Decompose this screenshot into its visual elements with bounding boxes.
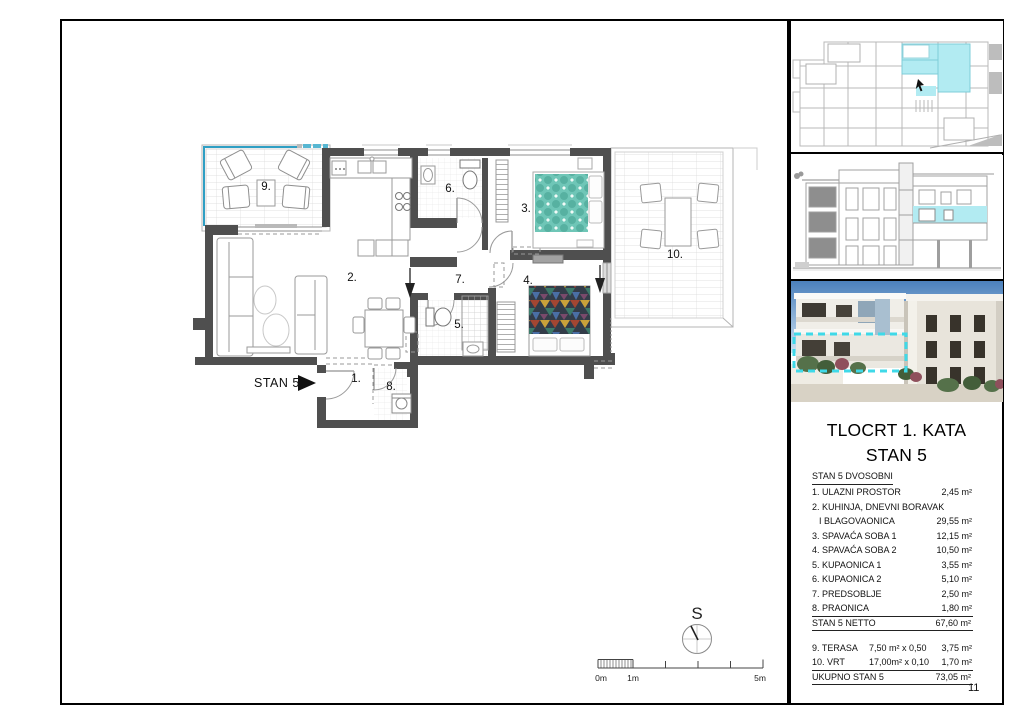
legend-subtotal-row: STAN 5 NETTO 67,60 m² [812,616,973,631]
building-render-photo [791,281,1003,402]
legend-row-value: 2,50 m² [941,587,972,602]
legend-row: 8. PRAONICA 1,80 m² [789,601,1004,616]
legend-row: 2. KUHINJA, DNEVNI BORAVAK [789,500,1004,515]
closet [496,160,508,222]
total-label: UKUPNO STAN 5 [812,671,884,684]
legend-row-value: 3,75 m² [941,641,972,656]
panel-title: TLOCRT 1. KATA STAN 5 [790,418,1003,468]
legend-row-calc: 7,50 m² x 0,50 [869,641,927,656]
tv-bench [247,347,290,353]
legend-row-value: 1,70 m² [941,655,972,670]
washbasin [424,169,433,182]
scale-label: 1m [627,673,639,683]
legend-row-label: 7. PREDSOBLJE [812,587,882,602]
sofa-large [217,238,253,356]
legend-row-label: 1. ULAZNI PROSTOR [812,485,901,500]
toilet-tank [460,160,480,168]
scale-label: 0m [595,673,607,683]
subtotal-label: STAN 5 NETTO [812,617,876,630]
toilet-bowl [435,308,451,326]
legend-row-value: 29,55 m² [936,514,972,529]
bed-1-blanket [535,174,588,232]
scale-labels: 0m1m5m [595,673,766,683]
section-thumbnail [791,155,1003,279]
total-value: 73,05 m² [935,671,971,684]
legend-row: 5. KUPAONICA 1 3,55 m² [789,558,1004,573]
legend-rows: 1. ULAZNI PROSTOR 2,45 m² 2. KUHINJA, DN… [789,485,1004,616]
terrace-10-garden [611,148,757,327]
room-label-1: 1. [351,373,361,385]
legend-row: 9. TERASA 7,50 m² x 0,50 3,75 m² [789,641,1004,656]
legend-row-value: 12,15 m² [936,529,972,544]
room-label-5: 5. [454,319,464,331]
panel-divider [789,152,1004,154]
sink-basin [373,161,386,173]
legend-row-value: 5,10 m² [941,572,972,587]
bedroom-2 [497,286,590,356]
drawing-sheet: { "page": { "number": "11" }, "plan": { … [0,0,1024,724]
room-label-10: 10. [667,249,683,261]
legend-row-label: 6. KUPAONICA 2 [812,572,881,587]
legend-row-label: I BLAGOVAONICA [819,514,895,529]
toilet-tank [426,308,434,326]
kitchen [330,157,412,256]
legend-row: 7. PREDSOBLJE 2,50 m² [789,587,1004,602]
sliding-door-panel [255,224,297,228]
title-line-2: STAN 5 [790,443,1003,468]
room-label-6: 6. [445,183,455,195]
nightstand [578,158,592,169]
unit-entry-label: STAN 5 [254,375,316,391]
legend-row-label: 2. KUHINJA, DNEVNI BORAVAK [812,500,944,515]
key-plan-thumbnail [791,21,1003,152]
room-label-2: 2. [347,272,357,284]
legend-row-value: 2,45 m² [941,485,972,500]
title-line-1: TLOCRT 1. KATA [790,418,1003,443]
legend-row-label: 4. SPAVAĆA SOBA 2 [812,543,897,558]
subtotal-value: 67,60 m² [935,617,971,630]
legend-row-value: 1,80 m² [941,601,972,616]
legend-row: 3. SPAVAĆA SOBA 1 12,15 m² [789,529,1004,544]
legend-row: 1. ULAZNI PROSTOR 2,45 m² [789,485,1004,500]
washbasin [467,345,479,353]
sink-basin [358,161,371,173]
bed-2-blanket [529,286,590,334]
room-label-8: 8. [386,381,396,393]
area-legend: STAN 5 DVOSOBNI 1. ULAZNI PROSTOR 2,45 m… [789,470,1004,685]
legend-row-value: 10,50 m² [936,543,972,558]
room-label-4: 4. [523,275,533,287]
legend-row-label: 9. TERASA [812,641,858,656]
legend-row-label: 3. SPAVAĆA SOBA 1 [812,529,897,544]
legend-total-row: UKUPNO STAN 5 73,05 m² [812,670,973,685]
room-label-7: 7. [455,274,465,286]
living-room-furniture [217,238,327,356]
legend-row-calc: 17,00m² x 0,10 [869,655,929,670]
wardrobe [497,302,515,352]
scale-bar: 0m1m5m [595,660,766,684]
legend-outdoor-rows: 9. TERASA 7,50 m² x 0,50 3,75 m² 10. VRT… [789,641,1004,670]
scale-label: 5m [754,673,766,683]
laundry [392,394,411,413]
legend-heading: STAN 5 DVOSOBNI [812,470,1004,485]
entry-arrow-icon [298,375,316,391]
compass-letter: S [691,604,702,623]
unit-label-text: STAN 5 [254,376,300,390]
legend-row: 6. KUPAONICA 2 5,10 m² [789,572,1004,587]
legend-row: I BLAGOVAONICA 29,55 m² [789,514,1004,529]
dining-set [353,298,415,359]
legend-row-label: 8. PRAONICA [812,601,869,616]
legend-row: 4. SPAVAĆA SOBA 2 10,50 m² [789,543,1004,558]
page-number: 11 [968,682,998,694]
fridge [332,161,346,175]
legend-row-label: 5. KUPAONICA 1 [812,558,881,573]
compass: S [683,604,712,654]
room-label-3: 3. [521,203,531,215]
legend-row: 10. VRT 17,00m² x 0,10 1,70 m² [789,655,1004,670]
room-label-9: 9. [261,181,271,193]
legend-row-value: 3,55 m² [941,558,972,573]
interior-glass-panel [533,255,563,263]
legend-row-label: 10. VRT [812,655,845,670]
toilet-bowl [463,171,477,189]
